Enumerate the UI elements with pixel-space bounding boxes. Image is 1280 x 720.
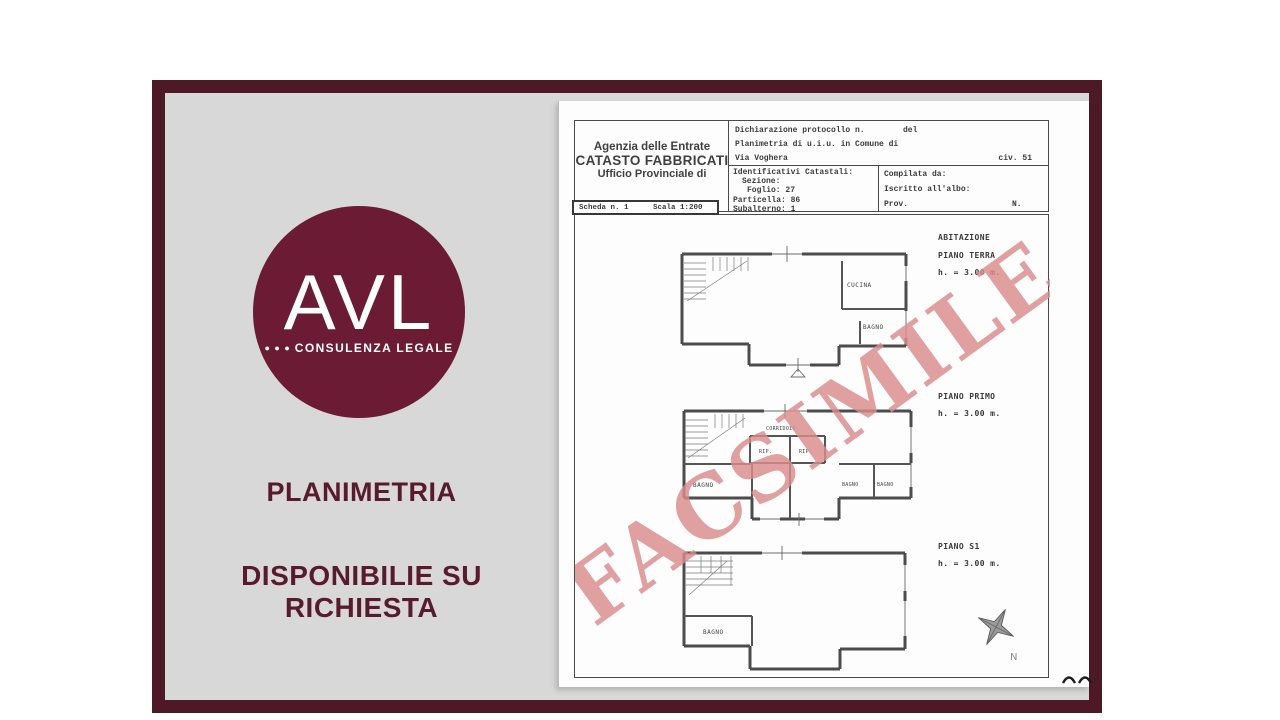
agency-line2: CATASTO FABBRICATI [575,153,729,168]
room-cucina-label: CUCINA [847,282,872,289]
scheda-scale: Scala 1:200 [653,203,703,214]
prov-label: Prov. [884,200,908,209]
floor-plan-box: CUCINA BAGNO CORRIDOIO RIP. RIP. BAGNO B… [574,214,1049,678]
compilata-label: Compilata da: [884,170,946,179]
n-label: N. [1012,198,1022,212]
civ-label: civ. 51 [998,152,1032,165]
identifiers-title: Identificativi Catastali: [733,168,874,177]
basement-walls [684,553,905,669]
caption-planimetria: PLANIMETRIA [165,477,558,508]
floor2-height: h. = 3.00 m. [938,409,1001,418]
identifiers-particella: Particella: 86 [733,196,874,205]
scheda-number: Scheda n. 1 [579,203,629,214]
identifiers-subalterno: Subalterno: 1 [733,205,874,214]
street-label: Via Voghera [735,154,788,163]
iscritto-label: Iscritto all'albo: [884,185,970,194]
cadastral-document-page: Agenzia delle Entrate CATASTO FABBRICATI… [558,101,1089,687]
logo-subtitle: CONSULENZA LEGALE [295,341,454,355]
declaration-cell: Dichiarazione protocollo n. del Planimet… [728,120,1049,166]
avl-logo: AVL ● ● ● CONSULENZA LEGALE [253,206,465,418]
agency-line3: Ufficio Provinciale di [575,168,729,180]
protocol-label: Dichiarazione protocollo n. [735,126,865,135]
floor3-height: h. = 3.00 m. [938,559,1001,568]
subject-label: Planimetria di u.i.u. in Comune di [735,140,898,149]
protocol-del-label: del [903,124,917,137]
logo-text: AVL [284,269,435,335]
logo-dots-icon: ● ● ● [264,343,290,353]
identifiers-cell: Identificativi Catastali: Sezione: Fogli… [728,165,879,212]
compiler-row1: Compilata da: [884,168,1043,183]
caption-disponibile: DISPONIBILIE SU RICHIESTA [165,560,558,624]
compiler-cell: Compilata da: Iscritto all'albo: Prov. N… [878,165,1049,212]
declaration-row-protocol: Dichiarazione protocollo n. del [735,124,1042,138]
floor3-name: PIANO S1 [938,542,980,551]
floor1-name: ABITAZIONE [938,233,990,242]
agency-line1: Agenzia delle Entrate [575,141,729,153]
basement-openings [762,546,905,636]
compass-north-label: N [1010,652,1017,663]
room-bagno-p1-right-label: BAGNO [877,482,894,488]
room-bagno-s1-label: BAGNO [703,629,724,636]
declaration-row-street: Via Voghera civ. 51 [735,152,1042,166]
identifiers-sezione: Sezione: [733,177,874,186]
compass-rose-icon [969,600,1023,654]
identifiers-foglio: Foglio: 27 [733,186,874,195]
declaration-row-subject: Planimetria di u.i.u. in Comune di [735,138,1042,152]
floor-plan-drawing: CUCINA BAGNO CORRIDOIO RIP. RIP. BAGNO B… [575,215,1050,679]
compiler-row2: Iscritto all'albo: [884,183,1043,198]
room-bagno-p1-mid-label: BAGNO [842,482,859,488]
facsimile-watermark: FACSIMILE [575,222,1050,646]
logo-subtitle-row: ● ● ● CONSULENZA LEGALE [264,341,453,355]
scheda-strip: Scheda n. 1 Scala 1:200 [572,200,719,215]
page-corner-marks-icon [1060,671,1094,686]
compiler-row3: Prov. N. [884,198,1043,213]
ground-floor-stairs [684,257,748,301]
agency-header-cell: Agenzia delle Entrate CATASTO FABBRICATI… [574,120,729,212]
